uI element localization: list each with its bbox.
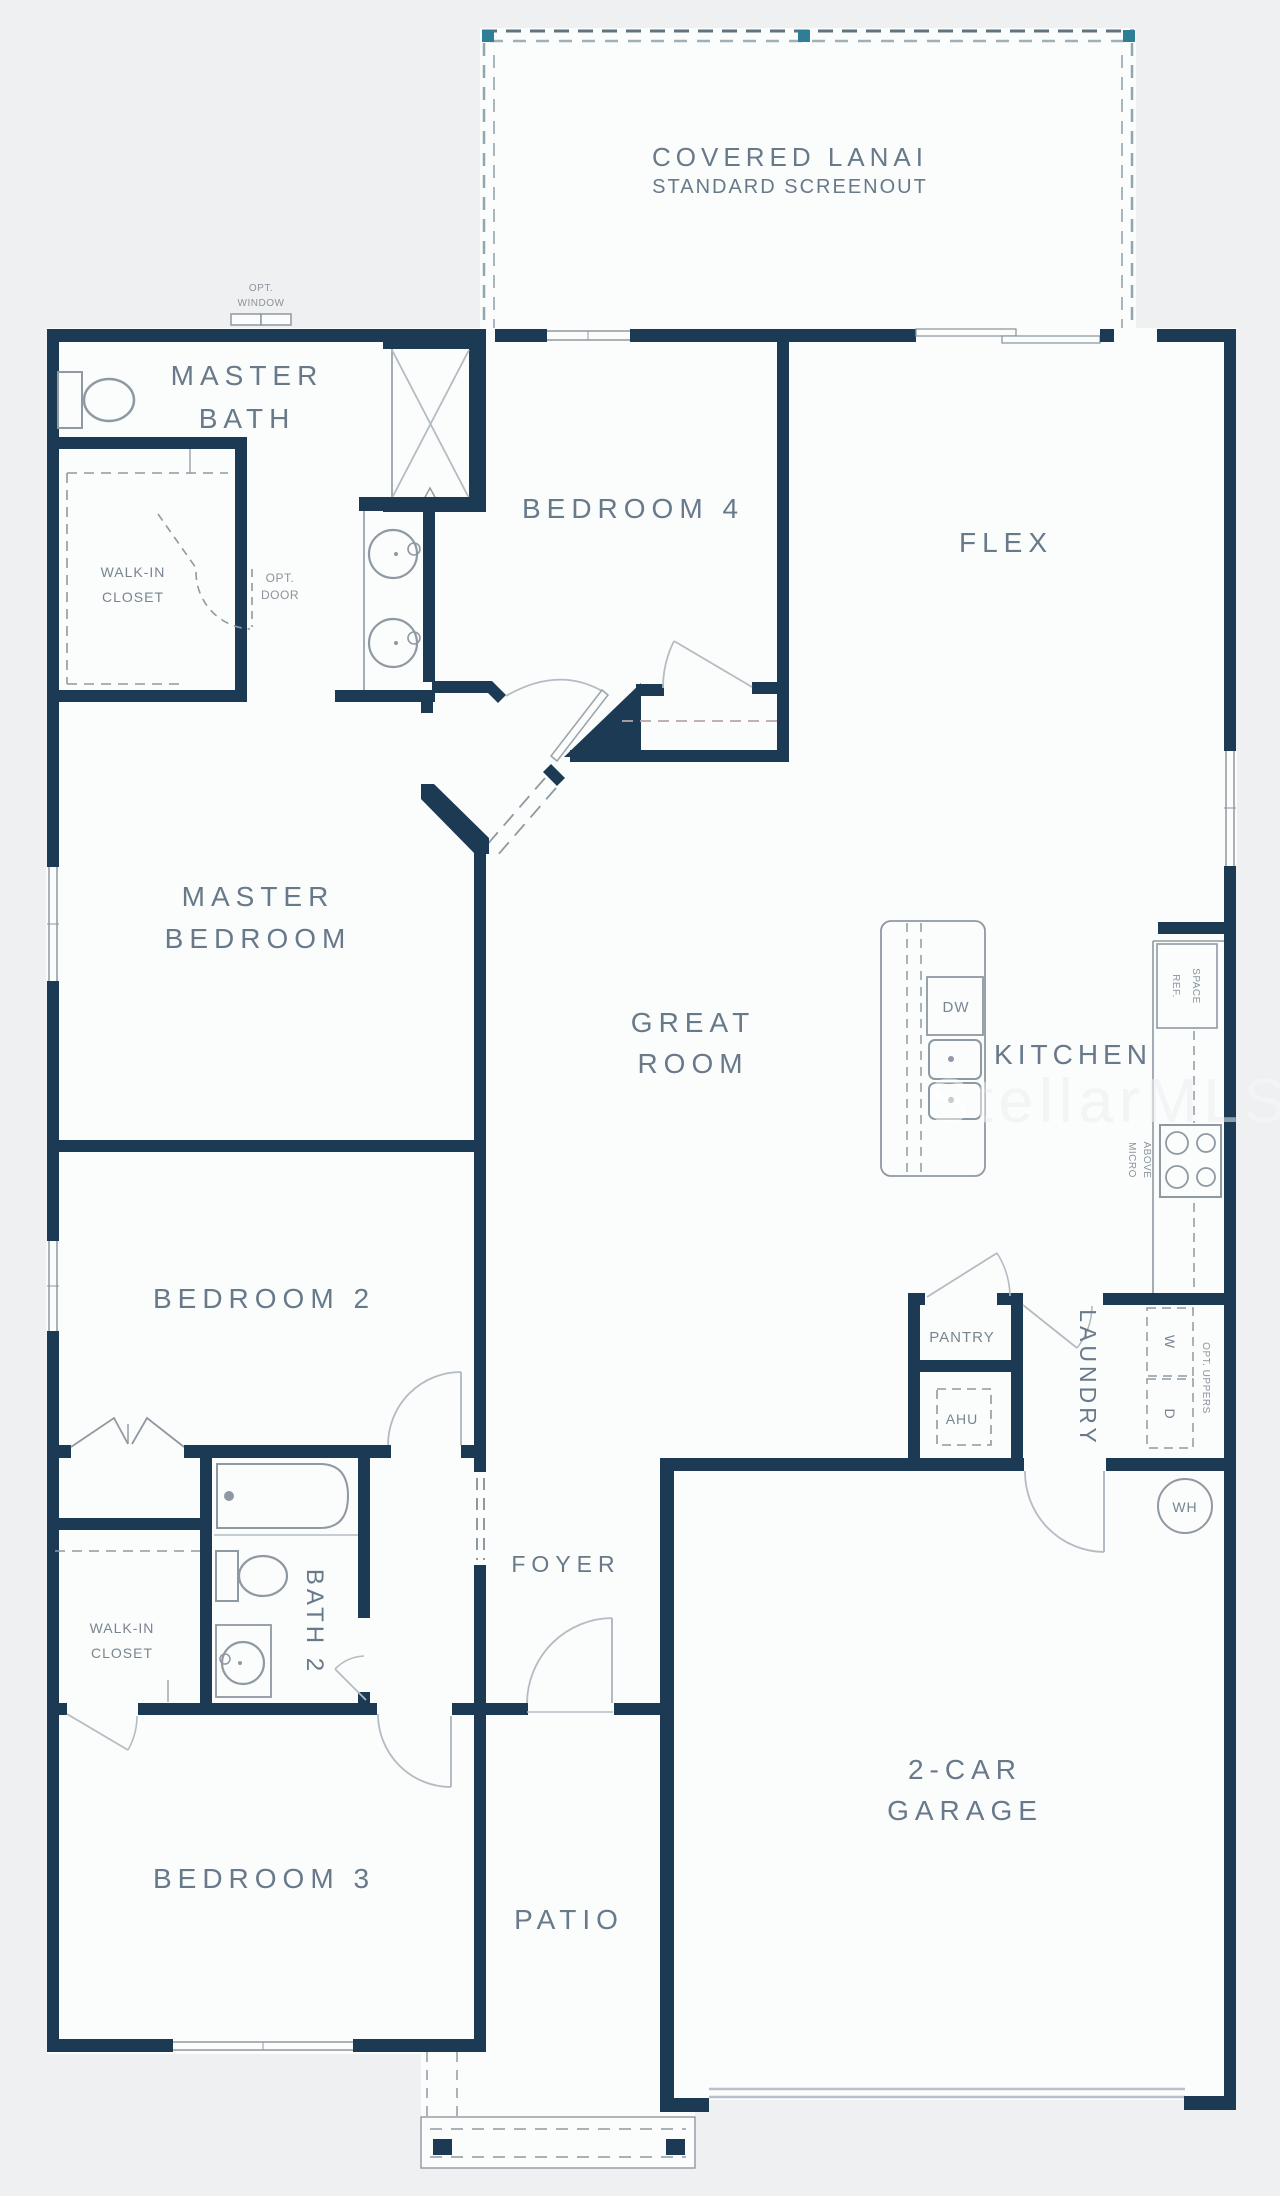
svg-text:StellarMLS: StellarMLS (928, 1067, 1280, 1136)
svg-text:WH: WH (1172, 1499, 1197, 1515)
svg-text:OPT. UPPERS: OPT. UPPERS (1200, 1342, 1211, 1414)
svg-text:BEDROOM 4: BEDROOM 4 (522, 493, 744, 524)
svg-text:DW: DW (943, 999, 970, 1016)
svg-text:BATH: BATH (199, 403, 296, 434)
svg-text:BEDROOM: BEDROOM (165, 923, 352, 954)
svg-text:KITCHEN: KITCHEN (994, 1039, 1152, 1070)
svg-text:D: D (1162, 1408, 1178, 1419)
svg-text:MASTER: MASTER (182, 881, 335, 912)
svg-text:REF.: REF. (1170, 974, 1181, 998)
svg-text:GARAGE: GARAGE (887, 1795, 1043, 1826)
svg-text:WALK-IN: WALK-IN (101, 564, 166, 580)
svg-text:STANDARD SCREENOUT: STANDARD SCREENOUT (652, 176, 928, 198)
svg-text:OPT.: OPT. (249, 283, 273, 294)
svg-text:PATIO: PATIO (514, 1904, 624, 1935)
svg-text:BATH 2: BATH 2 (301, 1569, 328, 1675)
svg-text:GREAT: GREAT (631, 1007, 755, 1038)
svg-text:W: W (1162, 1335, 1178, 1349)
svg-text:FLEX: FLEX (959, 527, 1053, 558)
svg-text:BEDROOM 3: BEDROOM 3 (153, 1863, 375, 1894)
svg-text:SPACE: SPACE (1190, 968, 1201, 1004)
svg-text:CLOSET: CLOSET (91, 1645, 153, 1661)
svg-text:2-CAR: 2-CAR (908, 1754, 1022, 1785)
svg-text:ABOVE: ABOVE (1141, 1142, 1152, 1179)
svg-text:WINDOW: WINDOW (238, 298, 285, 309)
svg-text:MASTER: MASTER (171, 360, 324, 391)
svg-text:PANTRY: PANTRY (929, 1329, 994, 1346)
svg-text:AHU: AHU (946, 1411, 979, 1427)
svg-text:FOYER: FOYER (511, 1551, 620, 1577)
svg-text:WALK-IN: WALK-IN (90, 1620, 155, 1636)
svg-text:MICRO: MICRO (1126, 1142, 1137, 1178)
svg-text:BEDROOM 2: BEDROOM 2 (153, 1283, 375, 1314)
svg-text:CLOSET: CLOSET (102, 589, 164, 605)
svg-text:ROOM: ROOM (637, 1048, 748, 1079)
svg-text:OPT.: OPT. (266, 571, 295, 585)
svg-text:COVERED LANAI: COVERED LANAI (652, 142, 928, 172)
svg-text:LAUNDRY: LAUNDRY (1075, 1309, 1101, 1447)
svg-text:DOOR: DOOR (261, 588, 299, 602)
